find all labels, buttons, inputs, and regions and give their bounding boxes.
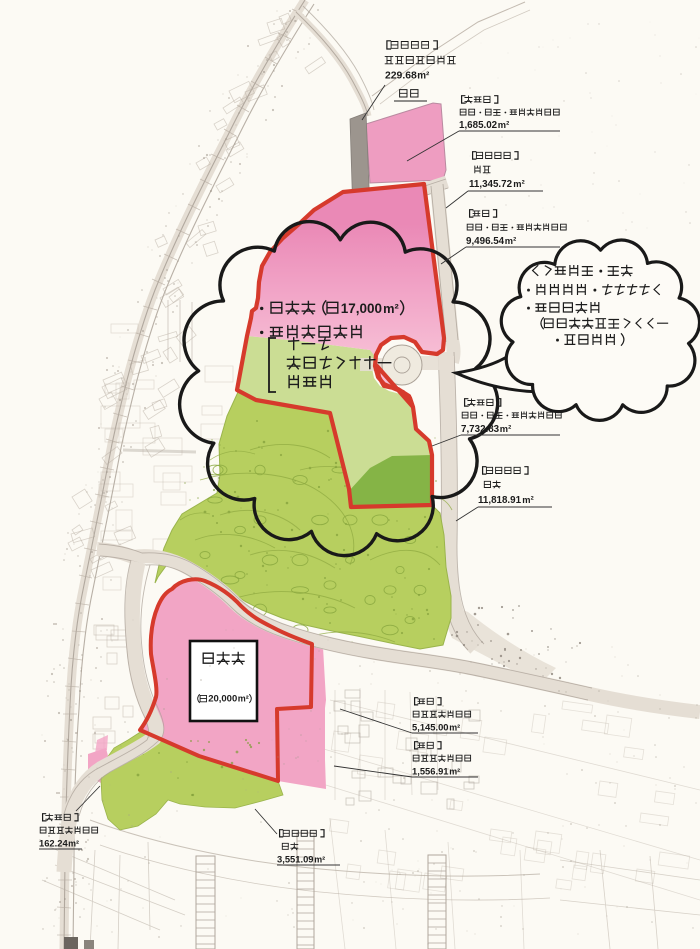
svg-text:229.68: 229.68 — [385, 70, 417, 81]
svg-text:m²: m² — [498, 120, 509, 130]
svg-text:m²: m² — [68, 839, 79, 849]
svg-text:11,345.72: 11,345.72 — [469, 179, 513, 190]
svg-text:17,000: 17,000 — [341, 301, 382, 316]
svg-text:1,556.91: 1,556.91 — [412, 766, 449, 777]
svg-text:20,000: 20,000 — [208, 694, 237, 705]
svg-text:m²: m² — [314, 855, 325, 865]
svg-text:m²: m² — [500, 424, 511, 434]
svg-text:m²: m² — [383, 301, 399, 316]
svg-text:m²: m² — [417, 70, 430, 81]
svg-text:9,496.54: 9,496.54 — [466, 236, 505, 247]
svg-text:3,551.09: 3,551.09 — [277, 854, 314, 865]
svg-text:m²: m² — [449, 723, 460, 733]
svg-text:m²: m² — [522, 495, 533, 505]
svg-text:m²: m² — [238, 694, 249, 704]
svg-text:11,818.91: 11,818.91 — [478, 495, 522, 506]
svg-text:m²: m² — [505, 236, 516, 246]
svg-text:m²: m² — [513, 179, 524, 189]
svg-text:7,732.83: 7,732.83 — [461, 424, 500, 435]
svg-text:162.24: 162.24 — [39, 838, 68, 849]
svg-text:m²: m² — [449, 767, 460, 777]
svg-text:5,145.00: 5,145.00 — [412, 722, 449, 733]
svg-text:1,685.02: 1,685.02 — [459, 120, 498, 131]
